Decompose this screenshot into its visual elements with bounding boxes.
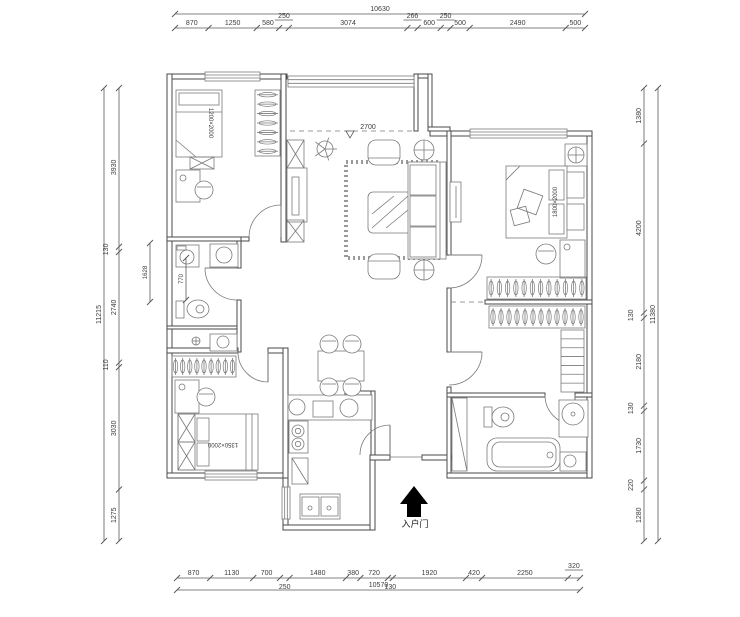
door-bedroom-2 xyxy=(449,255,482,288)
furniture-detail xyxy=(321,497,338,516)
dim-right-segments: 13804200130218013017302201280 xyxy=(628,85,647,544)
dim-label: 2740 xyxy=(111,299,118,315)
wall xyxy=(447,288,451,352)
furniture-detail xyxy=(187,300,209,318)
level-marker xyxy=(346,131,354,138)
floorplan-canvas: 27001200×20001800×20001350×2000106308701… xyxy=(0,0,740,617)
dim-label: 380 xyxy=(347,570,359,577)
window xyxy=(288,76,414,87)
furniture-detail xyxy=(492,442,556,467)
dining-chair xyxy=(320,378,338,396)
dim-label: 250 xyxy=(440,13,452,20)
dim-label: 3030 xyxy=(111,420,118,436)
closet-shelves xyxy=(561,330,584,392)
nightstand-2 xyxy=(567,172,584,198)
chair-2 xyxy=(536,244,556,264)
wall xyxy=(428,74,432,131)
dim-label: 600 xyxy=(423,20,435,27)
wall xyxy=(414,74,418,131)
dim-top-overall: 10630 xyxy=(172,6,588,17)
dim-label: 130 xyxy=(628,309,635,321)
wall xyxy=(241,237,249,241)
dim-label: 1480 xyxy=(310,570,326,577)
entry-arrow: 入户门 xyxy=(400,486,429,529)
vanity-1 xyxy=(210,244,238,267)
wall xyxy=(428,127,450,131)
dining-chair xyxy=(343,378,361,396)
dim-label: 420 xyxy=(468,570,480,577)
wall xyxy=(447,397,451,473)
wall xyxy=(370,455,390,460)
window xyxy=(205,72,260,81)
dim-label: 11215 xyxy=(96,305,103,324)
furniture-detail xyxy=(302,497,319,516)
desk-3 xyxy=(175,380,199,413)
dim-label: 10630 xyxy=(370,6,390,13)
wall xyxy=(447,473,592,478)
furniture-detail xyxy=(197,418,209,441)
toilet-2 xyxy=(484,407,492,427)
furniture-detail xyxy=(313,401,333,417)
wall xyxy=(237,300,241,352)
dim-label: 130 xyxy=(628,402,635,414)
dim-label: 1250 xyxy=(225,20,241,27)
desk-2 xyxy=(560,240,585,278)
wall xyxy=(283,348,288,478)
window xyxy=(282,487,290,519)
dim-top-segments: 870125058025030742666002505002490500 xyxy=(172,13,588,31)
dim-bottom-overall: 10570 xyxy=(174,582,583,593)
chair-1 xyxy=(195,181,213,199)
page: { "meta": { "title": "apartment-floor-pl… xyxy=(0,0,740,617)
dim-label: 870 xyxy=(186,20,198,27)
dim-label: 220 xyxy=(628,479,635,491)
dim-inner-1628: 1628 xyxy=(143,240,153,305)
dim-label: 1280 xyxy=(636,507,643,523)
dining-chair xyxy=(343,335,361,353)
dim-label: 700 xyxy=(261,570,273,577)
dim-left-overall: 11215 xyxy=(96,85,107,544)
dim-label: 110 xyxy=(103,359,110,370)
dim-label: 1275 xyxy=(111,507,118,523)
furniture-detail xyxy=(197,443,209,466)
furniture-detail xyxy=(492,407,514,427)
dim-label: 266 xyxy=(407,13,419,20)
wall xyxy=(167,74,172,478)
wall xyxy=(167,237,241,241)
window xyxy=(470,129,567,138)
dim-label: 10570 xyxy=(369,582,389,589)
plan-label: 1350×2000 xyxy=(207,441,238,447)
armchair xyxy=(368,140,400,165)
plan-label: 1800×2000 xyxy=(553,186,559,217)
dim-label: 2180 xyxy=(636,354,643,370)
dim-label: 250 xyxy=(278,13,290,20)
nightstand-2 xyxy=(567,204,584,230)
dim-label: 11380 xyxy=(650,305,657,324)
toilet-1 xyxy=(176,301,184,318)
tv-console-2 xyxy=(450,182,461,222)
dining-chair xyxy=(320,335,338,353)
furniture-detail xyxy=(410,227,436,257)
dim-label: 3930 xyxy=(111,159,118,175)
chair-3 xyxy=(197,388,215,406)
wall xyxy=(268,348,283,353)
wall xyxy=(167,326,237,329)
dim-label: 720 xyxy=(368,570,380,577)
entry-arrow-head xyxy=(400,486,428,504)
dim-label: 4200 xyxy=(636,220,643,236)
wall xyxy=(283,525,375,530)
window xyxy=(205,471,257,480)
furniture-detail xyxy=(410,165,436,195)
wall xyxy=(281,74,286,242)
dim-label: 500 xyxy=(454,20,466,27)
dim-label: 870 xyxy=(188,570,200,577)
furniture-detail xyxy=(179,93,219,105)
dim-left-segments: 3930130274011030301275 xyxy=(103,85,122,544)
dim-label: 1130 xyxy=(224,570,239,577)
door-hall xyxy=(449,352,482,385)
armchair xyxy=(368,254,400,279)
dim-label: 1730 xyxy=(636,438,643,454)
door-bedroom-1 xyxy=(249,205,281,237)
wall xyxy=(447,393,545,397)
dim-label: 130 xyxy=(103,243,110,255)
entry-arrow-shaft xyxy=(407,504,421,517)
plan-label: 1200×2000 xyxy=(207,108,213,139)
entry-label: 入户门 xyxy=(401,518,428,529)
door-bedroom-3 xyxy=(238,352,268,382)
dim-label: 1380 xyxy=(636,108,643,124)
tv xyxy=(292,177,299,215)
dim-label: 320 xyxy=(568,563,580,570)
wall xyxy=(370,455,375,530)
dim-label: 3074 xyxy=(340,20,356,27)
dim-right-overall: 11380 xyxy=(650,85,661,544)
dim-label: 500 xyxy=(570,20,582,27)
floorplan-drawing: 27001200×20001800×20001350×2000106308701… xyxy=(0,0,740,617)
dim-label: 2250 xyxy=(517,570,533,577)
dim-label: 580 xyxy=(262,20,274,27)
furniture-detail xyxy=(177,246,186,250)
furniture-detail xyxy=(410,196,436,226)
dim-label: 2490 xyxy=(510,20,526,27)
wall xyxy=(485,300,592,304)
dining-table xyxy=(318,351,364,381)
dim-label: 770 xyxy=(179,273,185,284)
dim-label: 1920 xyxy=(422,570,438,577)
dim-label: 1628 xyxy=(143,265,149,279)
vanity-2 xyxy=(210,334,237,351)
plan-label: 2700 xyxy=(360,124,376,131)
wall xyxy=(575,393,592,397)
door-bath-1 xyxy=(205,268,237,300)
